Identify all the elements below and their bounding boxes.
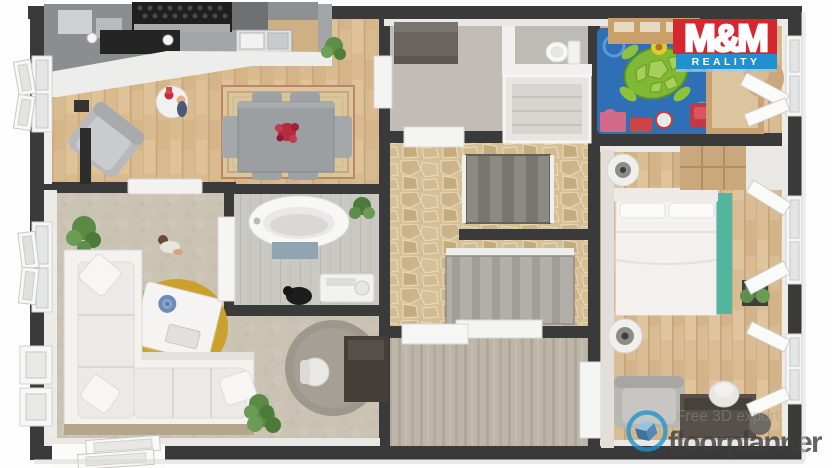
- svg-text:floorplanner: floorplanner: [668, 426, 823, 459]
- svg-text:M&M: M&M: [684, 18, 767, 60]
- svg-text:REALITY: REALITY: [692, 56, 761, 68]
- svg-text:Free 3D export: Free 3D export: [676, 408, 780, 425]
